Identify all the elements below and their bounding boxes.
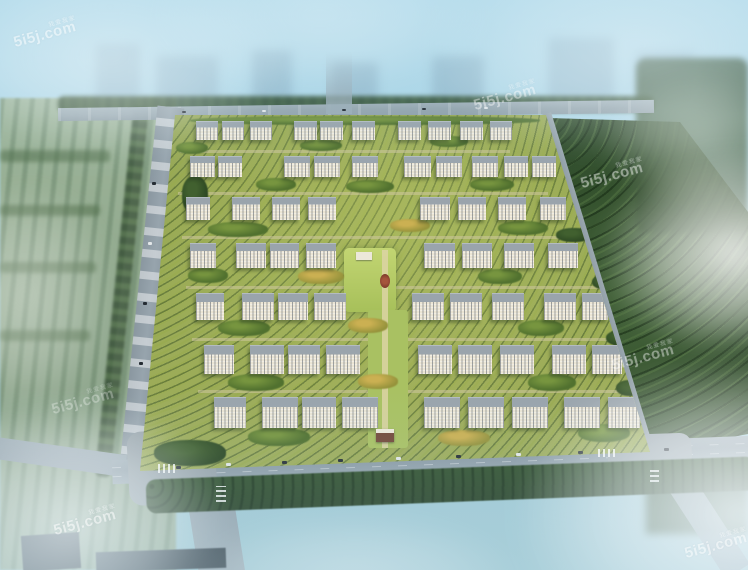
watermark-5i5j: 5i5j.com我爱我家 — [472, 81, 539, 115]
aerial-rendering: 5i5j.com我爱我家5i5j.com我爱我家5i5j.com我爱我家5i5j… — [0, 0, 748, 570]
watermark-layer: 5i5j.com我爱我家5i5j.com我爱我家5i5j.com我爱我家5i5j… — [0, 0, 748, 570]
watermark-5i5j: 5i5j.com我爱我家 — [50, 385, 117, 419]
watermark-5i5j: 5i5j.com我爱我家 — [579, 159, 646, 193]
watermark-5i5j: 5i5j.com我爱我家 — [12, 18, 79, 52]
watermark-5i5j: 5i5j.com我爱我家 — [683, 529, 748, 563]
watermark-5i5j: 5i5j.com我爱我家 — [52, 506, 119, 540]
watermark-5i5j: 5i5j.com我爱我家 — [610, 341, 677, 375]
